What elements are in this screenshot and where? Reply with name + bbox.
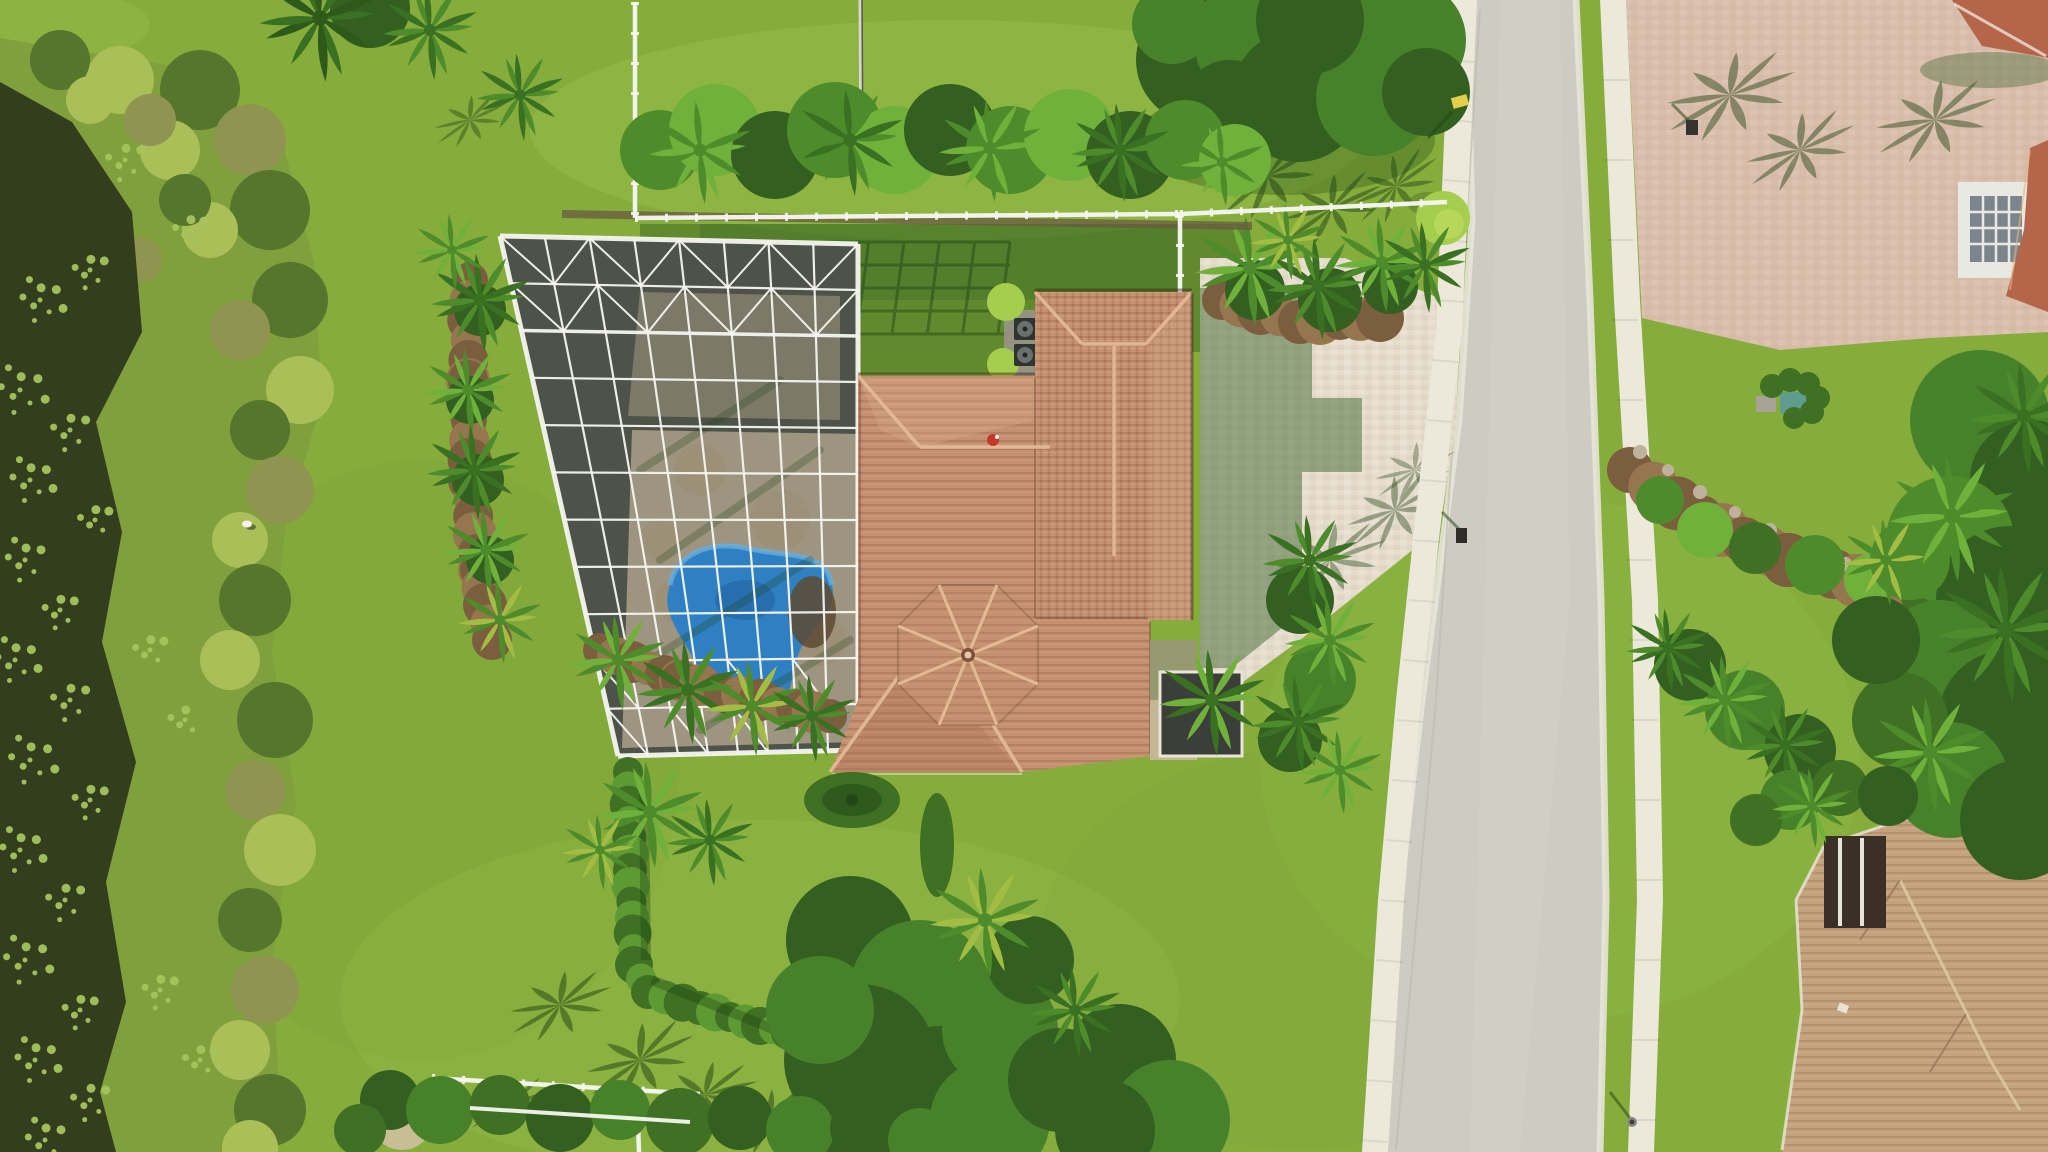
vegetation-blob xyxy=(214,104,286,176)
lily-pad xyxy=(10,393,17,400)
lily-pad xyxy=(11,410,16,415)
lily-pad xyxy=(68,428,73,433)
palm-crown-center xyxy=(312,10,327,25)
lily-pad xyxy=(90,996,99,1005)
vegetation-blob xyxy=(1832,596,1920,684)
lily-pad xyxy=(38,944,47,953)
lily-pad xyxy=(67,684,76,693)
vegetation-blob xyxy=(1633,445,1647,459)
lily-pad xyxy=(22,544,31,553)
lily-pad xyxy=(34,664,43,673)
lily-pad xyxy=(43,744,52,753)
utility-pad xyxy=(1756,396,1776,412)
lily-pad xyxy=(42,1069,47,1074)
lily-pad xyxy=(42,604,49,611)
aerial-photo-canvas xyxy=(0,0,2048,1152)
garage-east-slope-light xyxy=(1150,292,1192,620)
lily-pad xyxy=(27,401,32,406)
lily-pad xyxy=(115,162,122,169)
lily-pad xyxy=(181,231,188,238)
lily-pad xyxy=(172,224,179,231)
lily-pad xyxy=(53,625,58,630)
lily-pad xyxy=(155,658,160,663)
lily-pad xyxy=(196,1045,205,1054)
lily-pad xyxy=(81,272,88,279)
lily-pad xyxy=(54,1064,63,1073)
lily-pad xyxy=(146,635,155,644)
vegetation-blob xyxy=(708,1086,772,1150)
lily-pad xyxy=(37,283,46,292)
palm-crown-center xyxy=(1283,235,1293,245)
palm-crown-center xyxy=(1069,1004,1081,1016)
lily-pad xyxy=(91,505,100,514)
mailbox xyxy=(1456,528,1467,543)
scene-root xyxy=(0,0,2048,1152)
backyard-bush-1 xyxy=(987,283,1025,321)
lily-pad xyxy=(12,643,21,652)
lily-pad xyxy=(32,1043,41,1052)
palm-crown-center xyxy=(1312,280,1325,293)
lily-pad xyxy=(167,714,174,721)
lily-pad xyxy=(158,988,163,993)
lily-pad xyxy=(153,1005,158,1010)
lily-pad xyxy=(183,718,188,723)
lily-pad xyxy=(19,293,26,300)
vegetation-blob xyxy=(1693,485,1707,499)
lily-pad xyxy=(16,456,23,463)
palm-crown-center xyxy=(1292,716,1304,728)
lily-pad xyxy=(18,388,23,393)
palm-crown-center xyxy=(468,464,480,476)
lily-pad xyxy=(62,1004,69,1011)
vegetation-blob xyxy=(1662,464,1674,476)
lily-pad xyxy=(22,669,27,674)
lily-pad xyxy=(62,884,71,893)
lily-pad xyxy=(60,432,67,439)
white-bird xyxy=(242,521,252,528)
lily-pad xyxy=(31,569,36,574)
lily-pad xyxy=(159,637,168,646)
palm-crown-center xyxy=(1205,693,1218,706)
lily-pad xyxy=(148,648,153,653)
ac-fan-1-hub xyxy=(1023,327,1028,332)
palm-crown-center xyxy=(978,913,992,927)
lily-pad xyxy=(50,765,59,774)
lily-pad xyxy=(10,935,17,942)
mailbox-2 xyxy=(1686,120,1698,135)
lily-pad xyxy=(95,278,100,283)
palm-crown-center xyxy=(1419,259,1431,271)
lamp-post-top xyxy=(1630,1120,1635,1125)
vegetation-blob xyxy=(1677,502,1733,558)
lily-pad xyxy=(117,177,122,182)
palm-crown-center xyxy=(480,544,491,555)
lily-pad xyxy=(3,953,10,960)
lily-pad xyxy=(186,215,195,224)
lily-pad xyxy=(209,1047,218,1056)
lily-pad xyxy=(20,763,27,770)
lily-pad xyxy=(10,852,17,859)
lily-pad xyxy=(141,651,148,658)
neighbor-entry-arches xyxy=(1824,836,1886,928)
palm-crown-center xyxy=(514,89,525,100)
palm-crown-center xyxy=(1304,554,1316,566)
cage-beam-horizontal xyxy=(575,566,858,567)
lily-pad xyxy=(176,721,183,728)
lily-pad xyxy=(70,596,79,605)
lily-pad xyxy=(33,374,42,383)
lily-pad xyxy=(32,835,41,844)
lily-pad xyxy=(71,909,76,914)
lily-pad xyxy=(142,984,149,991)
palm-crown-center xyxy=(1335,765,1346,776)
lily-pad xyxy=(17,578,22,583)
lily-pad xyxy=(151,992,158,999)
vegetation-blob xyxy=(1785,535,1845,595)
lily-pad xyxy=(6,826,13,833)
lily-pad xyxy=(14,1053,21,1060)
lily-pad xyxy=(47,309,52,314)
lily-pad xyxy=(25,1062,32,1069)
ac-fan-2-hub xyxy=(1023,353,1028,358)
lily-pad xyxy=(93,518,98,523)
lily-pad xyxy=(81,686,90,695)
palm-crown-center xyxy=(1923,745,1937,759)
lily-pad xyxy=(100,786,109,795)
lily-pad xyxy=(32,970,37,975)
lily-pad xyxy=(5,364,12,371)
lily-pad xyxy=(199,217,208,226)
vegetation-blob xyxy=(237,682,313,758)
lily-pad xyxy=(181,705,190,714)
lily-pad xyxy=(82,1117,87,1122)
lily-pad xyxy=(27,463,36,472)
lily-pad xyxy=(70,1094,77,1101)
lily-pad xyxy=(88,268,93,273)
lily-pad xyxy=(85,1018,90,1023)
vegetation-blob xyxy=(470,1075,530,1135)
lily-pad xyxy=(191,1061,198,1068)
palm-crown-center xyxy=(682,684,695,697)
palm-crown-center xyxy=(1719,694,1731,706)
lily-pad xyxy=(23,958,28,963)
lily-pad xyxy=(190,727,195,732)
lily-pad xyxy=(77,514,84,521)
lily-pad xyxy=(81,416,90,425)
lily-pad xyxy=(5,554,12,561)
palm-crown-center xyxy=(495,615,506,626)
lily-pad xyxy=(55,902,62,909)
lily-pad xyxy=(17,833,26,842)
lily-pad xyxy=(18,848,23,853)
palm-crown-center xyxy=(984,142,997,155)
roof-white-speck xyxy=(995,435,999,439)
lily-pad xyxy=(35,1142,42,1149)
lily-pad xyxy=(27,645,36,654)
lily-pad xyxy=(15,562,22,569)
lily-pad xyxy=(88,1098,93,1103)
lily-pad xyxy=(5,662,12,669)
lily-pad xyxy=(9,473,16,480)
lily-pad xyxy=(62,447,67,452)
lily-pad xyxy=(22,942,31,951)
lily-pad xyxy=(170,976,179,985)
lily-pad xyxy=(20,482,27,489)
palm-crown-center xyxy=(1243,261,1257,275)
lily-pad xyxy=(42,1124,51,1133)
vegetation-blob xyxy=(1636,476,1684,524)
lily-pad xyxy=(7,678,12,683)
palm-crown-center xyxy=(1997,621,2014,638)
lily-pad xyxy=(105,154,112,161)
vegetation-blob xyxy=(674,444,726,496)
palm-crown-center xyxy=(1376,256,1388,268)
palm-crown-center xyxy=(1807,801,1817,811)
palm-crown-center xyxy=(643,805,656,818)
palm-crown-center xyxy=(1114,144,1126,156)
lily-pad xyxy=(27,1078,32,1083)
vegetation-blob xyxy=(218,888,282,952)
lily-pad xyxy=(51,612,58,619)
vegetation-blob xyxy=(1729,506,1741,518)
lily-pad xyxy=(17,980,22,985)
palm-crown-center xyxy=(1663,643,1674,654)
lily-pad xyxy=(8,753,15,760)
lily-pad xyxy=(132,644,139,651)
palm-crown-center xyxy=(704,834,715,845)
lily-pad xyxy=(72,264,79,271)
lily-pad xyxy=(26,276,33,283)
palm-crown-center xyxy=(694,144,707,157)
lily-pad xyxy=(15,963,22,970)
lily-pad xyxy=(25,1134,32,1141)
vegetation-blob xyxy=(244,814,316,886)
lily-pad xyxy=(59,304,68,313)
lily-pad xyxy=(101,1086,110,1095)
lily-pad xyxy=(76,439,81,444)
lily-pad xyxy=(37,545,46,554)
lily-pad xyxy=(22,498,27,503)
lily-pad xyxy=(67,414,76,423)
vegetation-blob xyxy=(1382,48,1470,136)
lily-pad xyxy=(95,808,100,813)
vegetation-blob xyxy=(200,630,260,690)
lily-pad xyxy=(57,1125,66,1134)
lily-pad xyxy=(49,484,58,493)
lily-pad xyxy=(33,1058,38,1063)
palm-crown-center xyxy=(447,245,457,255)
lily-pad xyxy=(37,770,42,775)
turret-finial-cap xyxy=(965,652,972,659)
lily-pad xyxy=(104,507,113,516)
lily-pad xyxy=(28,478,33,483)
lily-pad xyxy=(41,395,50,404)
lily-pad xyxy=(30,302,37,309)
lily-pad xyxy=(56,595,65,604)
palm-crown-center xyxy=(462,384,473,395)
lily-pad xyxy=(62,717,67,722)
vegetation-blob xyxy=(246,456,314,524)
vegetation-blob xyxy=(230,170,310,250)
lily-pad xyxy=(76,886,85,895)
lily-pad xyxy=(22,780,27,785)
lily-pad xyxy=(13,658,18,663)
lily-pad xyxy=(37,489,42,494)
lily-pad xyxy=(195,238,200,243)
lily-pad xyxy=(1,636,8,643)
lily-pad xyxy=(27,859,32,864)
lily-pad xyxy=(131,169,136,174)
lily-pad xyxy=(76,709,81,714)
vegetation-blob xyxy=(219,564,291,636)
vegetation-blob xyxy=(1730,794,1782,846)
lily-pad xyxy=(39,854,48,863)
palm-crown-center xyxy=(1779,739,1790,750)
lily-pad xyxy=(50,694,57,701)
vegetation-blob xyxy=(526,1084,594,1152)
lily-pad xyxy=(52,285,61,294)
lily-pad xyxy=(122,144,131,153)
vegetation-blob xyxy=(210,1020,270,1080)
lily-pad xyxy=(27,742,36,751)
lily-pad xyxy=(205,1068,210,1073)
lily-pad xyxy=(123,158,128,163)
palm-crown-center xyxy=(612,654,624,666)
round-hedge-trunk xyxy=(846,794,858,806)
lily-pad xyxy=(32,318,37,323)
vegetation-blob xyxy=(766,956,874,1064)
road-curbs-segment xyxy=(1601,600,1606,900)
lily-pad xyxy=(198,1058,203,1063)
vegetation-blob xyxy=(590,1080,650,1140)
lily-pad xyxy=(28,758,33,763)
lily-pad xyxy=(45,965,54,974)
palm-crown-center xyxy=(595,845,605,855)
lily-pad xyxy=(86,521,93,528)
lily-pad xyxy=(81,802,88,809)
lily-pad xyxy=(136,146,145,155)
vegetation-blob xyxy=(66,76,114,124)
lily-pad xyxy=(58,608,63,613)
palm-crown-center xyxy=(1944,508,1960,524)
vegetation-blob xyxy=(124,94,176,146)
lily-pad xyxy=(12,868,17,873)
lily-pad xyxy=(68,698,73,703)
vegetation-blob xyxy=(406,1076,474,1144)
vegetation-blob xyxy=(1783,407,1805,429)
pillar-hedge xyxy=(920,793,954,897)
lily-pad xyxy=(100,528,105,533)
lily-pad xyxy=(188,228,193,233)
lily-pad xyxy=(50,424,57,431)
lily-pad xyxy=(43,1138,48,1143)
vegetation-blob xyxy=(1729,522,1781,574)
lily-pad xyxy=(73,1025,78,1030)
vegetation-blob xyxy=(212,512,268,568)
lily-pad xyxy=(86,255,95,264)
vegetation-blob xyxy=(231,956,299,1024)
lily-pad xyxy=(23,558,28,563)
lily-pad xyxy=(78,1008,83,1013)
palm-crown-center xyxy=(2017,409,2031,423)
lily-pad xyxy=(80,1102,87,1109)
palm-crown-center xyxy=(474,294,486,306)
lily-pad xyxy=(87,1084,96,1093)
palm-crown-center xyxy=(843,133,856,146)
lily-pad xyxy=(96,1109,101,1114)
vegetation-blob xyxy=(1858,766,1918,826)
vegetation-blob xyxy=(210,300,270,360)
lily-pad xyxy=(72,794,79,801)
vegetation-blob xyxy=(230,400,290,460)
lily-pad xyxy=(11,537,18,544)
palm-crown-center xyxy=(1217,157,1228,168)
lily-pad xyxy=(21,1036,28,1043)
lily-pad xyxy=(76,995,85,1004)
lily-pad xyxy=(83,285,88,290)
lily-pad xyxy=(182,1054,189,1061)
vegetation-blob xyxy=(225,760,285,820)
lily-pad xyxy=(17,372,26,381)
lily-pad xyxy=(15,735,22,742)
lily-pad xyxy=(60,702,67,709)
lily-pad xyxy=(165,998,170,1003)
palm-crown-center xyxy=(424,24,436,36)
lily-pad xyxy=(31,1117,38,1124)
lily-pad xyxy=(88,798,93,803)
lily-pad xyxy=(86,785,95,794)
lily-pad xyxy=(38,298,43,303)
lily-pad xyxy=(100,256,109,265)
lily-pad xyxy=(47,1045,56,1054)
lily-pad xyxy=(156,975,165,984)
lily-pad xyxy=(65,618,70,623)
lily-pad xyxy=(83,815,88,820)
palm-crown-center xyxy=(806,710,817,721)
lily-pad xyxy=(71,1012,78,1019)
palm-crown-center xyxy=(1880,554,1891,565)
lily-pad xyxy=(42,465,51,474)
front-round-bush-hi xyxy=(1434,209,1464,239)
palm-crown-center xyxy=(746,700,758,712)
palm-crown-center xyxy=(1324,634,1336,646)
lily-pad xyxy=(63,898,68,903)
aerial-photo xyxy=(0,0,2048,1152)
lily-pad xyxy=(57,917,62,922)
lily-pad xyxy=(45,894,52,901)
